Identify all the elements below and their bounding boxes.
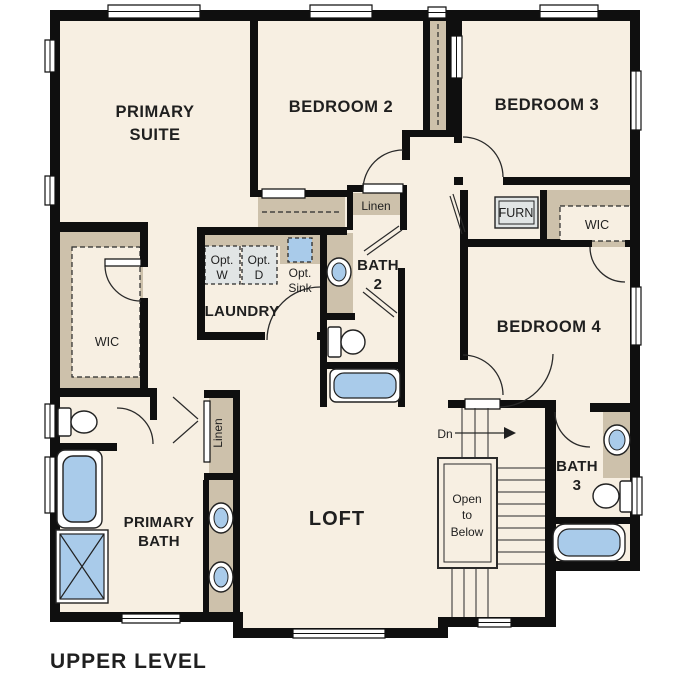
open-to-below-label-line3: Below — [451, 525, 484, 539]
opt-sink-basin — [288, 238, 312, 262]
bath2-label-line1: BATH — [357, 257, 399, 274]
bedroom3-label: BEDROOM 3 — [495, 96, 599, 114]
vanity-sink-primary-2-basin — [214, 567, 228, 587]
primary-bath-label-line2: BATH — [138, 533, 180, 550]
plan-title: UPPER LEVEL — [50, 650, 207, 673]
primary-bath-label-line1: PRIMARY — [124, 514, 195, 531]
opt-washer-label-line1: Opt. — [211, 253, 234, 267]
laundry-label: LAUNDRY — [205, 303, 280, 320]
stair-direction-label: Dn — [437, 427, 452, 441]
linen-hall-label: Linen — [361, 199, 390, 213]
bath3-label-line1: BATH — [556, 458, 598, 475]
opt-washer-label-line2: W — [216, 268, 228, 282]
opt-sink-label-line1: Opt. — [289, 266, 312, 280]
bedroom2-label: BEDROOM 2 — [289, 98, 393, 116]
primary-suite-label-line1: PRIMARY — [116, 103, 195, 121]
sink-bath3-basin — [609, 430, 625, 450]
vanity-sink-primary-1-basin — [214, 508, 228, 528]
bath3-label-line2: 3 — [573, 477, 582, 494]
bathtub-bath3-basin — [558, 529, 620, 556]
floorplan-page: PRIMARY SUITE BEDROOM 2 BEDROOM 3 BEDROO… — [0, 0, 687, 687]
wic-bedroom4-label: WIC — [585, 218, 609, 232]
toilet-primary-tank — [58, 408, 71, 436]
wic-primary-label: WIC — [95, 335, 119, 349]
bedroom4-label: BEDROOM 4 — [497, 318, 602, 336]
toilet-primary-bowl — [71, 411, 97, 433]
opt-dryer-label-line2: D — [255, 268, 264, 282]
primary-suite-label-line2: SUITE — [129, 126, 180, 144]
loft-label: LOFT — [309, 508, 365, 530]
bathtub-primary-basin — [63, 456, 96, 522]
open-to-below-label-line2: to — [462, 508, 472, 522]
floorplan-canvas: PRIMARY SUITE BEDROOM 2 BEDROOM 3 BEDROO… — [0, 0, 687, 687]
toilet-bath3-tank — [620, 481, 632, 512]
open-to-below-label-line1: Open — [452, 492, 481, 506]
toilet-bath2-tank — [328, 327, 341, 357]
bath2-label-line2: 2 — [374, 276, 383, 293]
toilet-bath3-bowl — [593, 484, 619, 508]
bathtub-bath2-basin — [334, 373, 396, 398]
opt-sink-label-line2: Sink — [288, 281, 312, 295]
sink-bath2-basin — [332, 263, 346, 281]
opt-dryer-label-line1: Opt. — [248, 253, 271, 267]
linen-loft-label: Linen — [211, 418, 225, 447]
furnace-label: FURN — [499, 206, 534, 220]
toilet-bath2-bowl — [341, 330, 365, 354]
